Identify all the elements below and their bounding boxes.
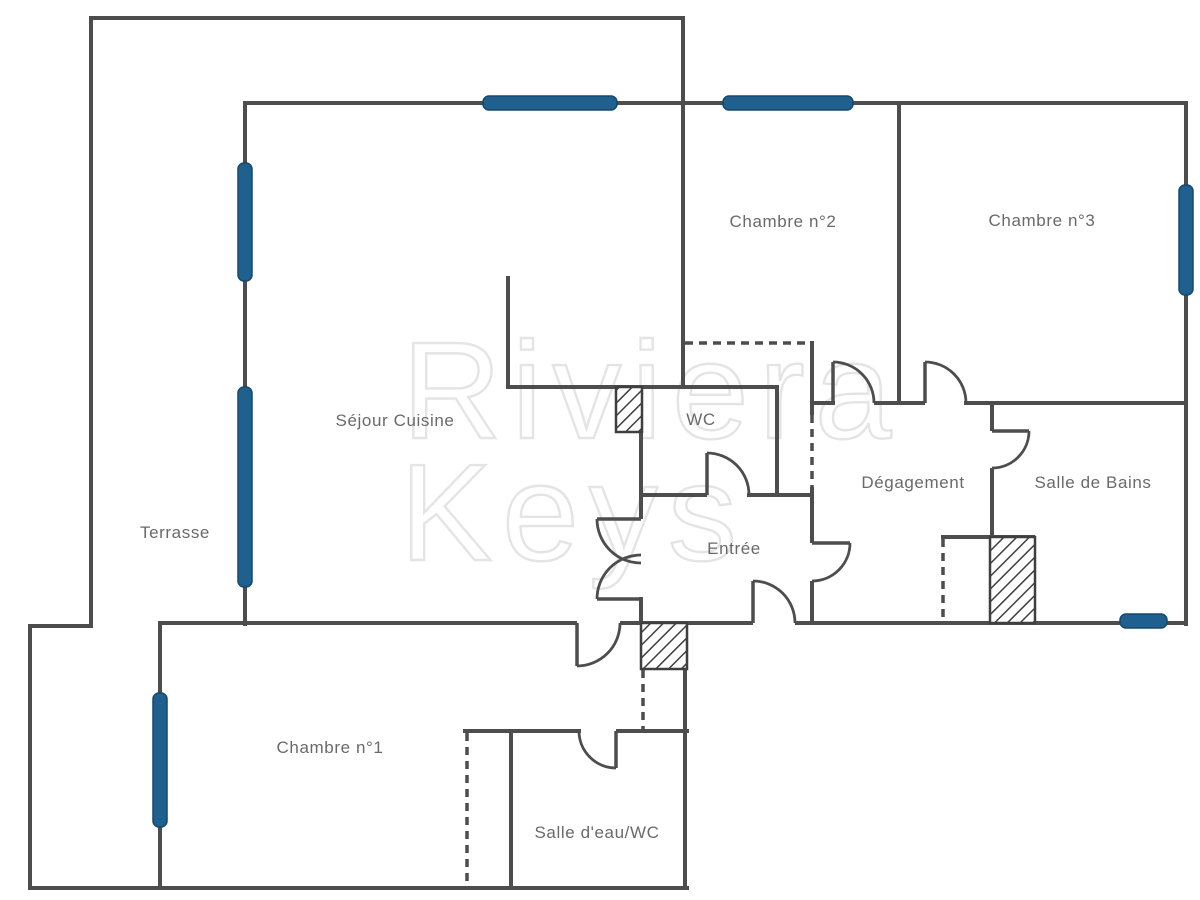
room-label-chambre-1: Chambre n°1 — [277, 738, 384, 757]
room-label-terrasse: Terrasse — [140, 523, 210, 542]
window-marker — [723, 96, 853, 110]
wall — [616, 729, 689, 733]
window-marker — [483, 96, 617, 110]
wall — [897, 101, 901, 405]
wall — [28, 624, 32, 890]
wall — [747, 493, 814, 497]
door-swing-arc — [812, 543, 850, 581]
wall — [509, 731, 513, 890]
door-chambre-3 — [925, 362, 966, 403]
door-swing-arc — [925, 362, 966, 403]
door-chambre-1 — [577, 623, 620, 666]
window-marker — [1120, 614, 1167, 628]
window-marker — [1179, 185, 1193, 295]
room-label-sejour-cuisine: Séjour Cuisine — [336, 411, 455, 430]
door-salle-bains — [992, 431, 1029, 468]
watermark-line2: Keys — [400, 436, 747, 590]
watermark: RivieraKeys — [400, 314, 901, 590]
door-salle-deau — [579, 731, 616, 768]
door-swing-arc — [992, 431, 1029, 468]
wall — [639, 493, 707, 497]
window-marker — [238, 163, 252, 281]
door-entree-sud — [753, 581, 795, 623]
room-label-chambre-3: Chambre n°3 — [989, 211, 1096, 230]
wall — [158, 621, 577, 625]
wall — [681, 16, 685, 389]
wall — [243, 101, 1188, 105]
wall — [639, 597, 643, 625]
wall — [775, 385, 779, 497]
wall — [810, 581, 814, 625]
door-swing-arc — [753, 581, 795, 623]
wall — [506, 276, 510, 387]
room-label-salle-deau-wc: Salle d'eau/WC — [534, 823, 659, 842]
hatched-wall-block — [641, 623, 687, 669]
wall — [89, 16, 93, 628]
door-degagement — [812, 543, 850, 581]
hatched-wall-block — [990, 537, 1035, 623]
room-label-wc: WC — [686, 410, 716, 429]
floor-plan-page: RivieraKeysTerrasseSéjour CuisineChambre… — [0, 0, 1200, 900]
room-label-degagement: Dégagement — [861, 473, 964, 492]
wall — [990, 468, 994, 539]
wall — [89, 16, 685, 20]
window-marker — [238, 387, 252, 587]
wall — [990, 401, 994, 431]
window-marker — [153, 693, 167, 827]
wall — [463, 729, 581, 733]
wall — [28, 624, 93, 628]
door-swing-arc — [579, 731, 616, 768]
room-label-chambre-2: Chambre n°2 — [730, 212, 837, 231]
floor-plan-svg: RivieraKeysTerrasseSéjour CuisineChambre… — [0, 0, 1200, 900]
hatched-wall-block — [616, 387, 642, 432]
room-label-entree: Entrée — [707, 539, 761, 558]
wall — [1184, 101, 1188, 626]
wall — [28, 886, 689, 890]
wall — [810, 487, 814, 543]
room-label-salle-de-bains: Salle de Bains — [1034, 473, 1151, 492]
door-swing-arc — [577, 623, 620, 666]
wall — [964, 401, 1188, 405]
